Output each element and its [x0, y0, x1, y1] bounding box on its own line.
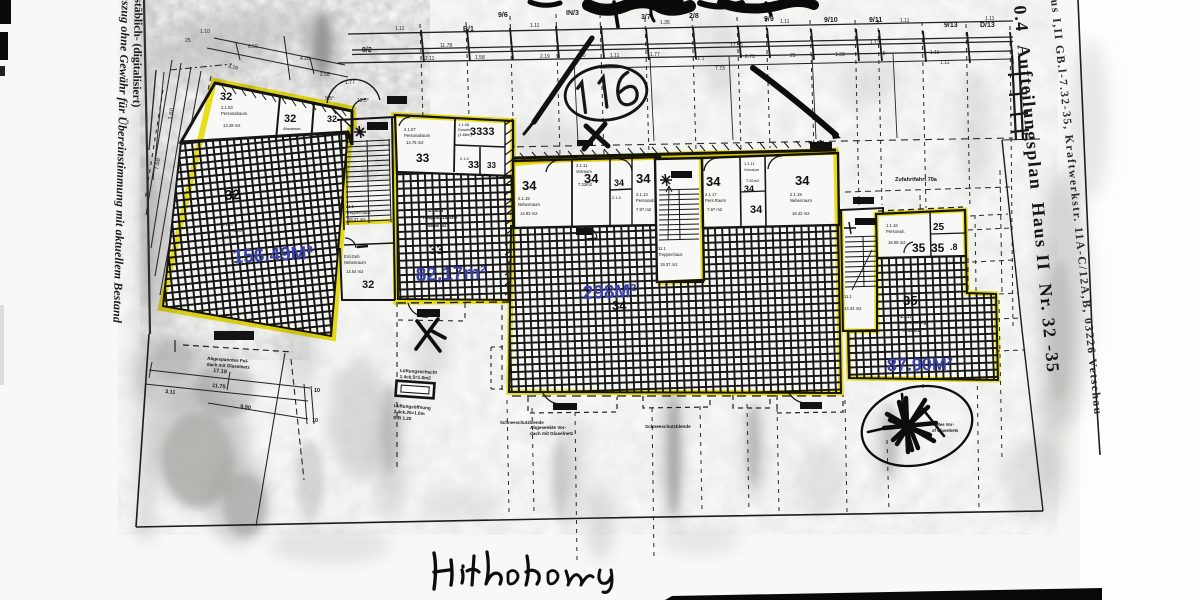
svg-text:34: 34: [795, 173, 810, 188]
svg-text:1.13: 1.13: [870, 40, 880, 46]
svg-text:6.50: 6.50: [248, 44, 258, 50]
svg-text:82,17m²: 82,17m²: [415, 263, 486, 286]
svg-text:32: 32: [220, 91, 232, 103]
svg-text:1.11: 1.11: [985, 16, 995, 22]
svg-text:1.1.16: 1.1.16: [886, 223, 898, 228]
svg-text:Abwasser.: Abwasser.: [283, 126, 301, 131]
svg-text:10: 10: [312, 418, 318, 424]
svg-text:7.97 m2: 7.97 m2: [636, 207, 652, 212]
svg-text:18.42 m2: 18.42 m2: [792, 211, 810, 216]
svg-text:1.11: 1.11: [610, 53, 620, 59]
svg-text:Vorraum: Vorraum: [744, 167, 760, 172]
svg-text:dach mit Glaselnetz: dach mit Glaselnetz: [530, 431, 574, 436]
svg-text:2.1.11: 2.1.11: [576, 163, 588, 168]
svg-text:Abgesenkte Vor-: Abgesenkte Vor-: [530, 425, 567, 430]
svg-text:Zufahrtfahrt 70a: Zufahrtfahrt 70a: [895, 177, 938, 183]
svg-text:1.11: 1.11: [900, 18, 910, 24]
svg-text:3/7: 3/7: [641, 14, 651, 21]
svg-text:of Glaselnets: of Glaselnets: [932, 428, 959, 433]
svg-text:2.1.15: 2.1.15: [518, 196, 530, 201]
svg-text:32: 32: [327, 114, 337, 124]
svg-text:Treppenhaus: Treppenhaus: [658, 252, 683, 257]
svg-text:1.11: 1.11: [780, 19, 790, 25]
svg-text:ntes Vor-: ntes Vor-: [936, 422, 954, 427]
svg-text:Treppenhaus: Treppenhaus: [346, 210, 371, 215]
svg-text:11.78: 11.78: [440, 43, 452, 49]
svg-text:34: 34: [744, 184, 754, 194]
svg-text:25: 25: [185, 38, 191, 44]
svg-text:11.1: 11.1: [346, 204, 355, 209]
svg-text:1.11: 1.11: [530, 23, 540, 29]
svg-text:11.1: 11.1: [844, 294, 853, 299]
svg-text:Personalraum: Personalraum: [221, 111, 248, 116]
svg-text:Personalr.: Personalr.: [886, 229, 905, 234]
svg-text:.8: .8: [950, 242, 958, 252]
svg-text:Nebenraum: Nebenraum: [344, 260, 366, 265]
svg-text:14.54 m2: 14.54 m2: [346, 269, 364, 274]
svg-text:4.28: 4.28: [300, 56, 310, 62]
svg-text:32: 32: [362, 279, 374, 291]
svg-text:13.29 m2: 13.29 m2: [223, 123, 241, 128]
svg-text:19.37 m2: 19.37 m2: [660, 262, 678, 267]
svg-text:9/13: 9/13: [944, 22, 958, 29]
svg-text:15: 15: [880, 51, 886, 57]
svg-text:9/10: 9/10: [824, 17, 838, 24]
svg-text:1.11: 1.11: [930, 50, 940, 56]
svg-text:Pers.Raum: Pers.Raum: [705, 198, 726, 203]
svg-text:8/2: 8/2: [362, 47, 372, 54]
svg-text:10: 10: [314, 388, 320, 394]
svg-text:9/11: 9/11: [869, 17, 882, 24]
svg-text:B/1: B/1: [463, 26, 474, 33]
svg-text:56.56 m2: 56.56 m2: [428, 223, 447, 228]
svg-text:1.1.17: 1.1.17: [900, 314, 912, 319]
svg-text:34: 34: [636, 171, 651, 186]
svg-text:141.2 m2: 141.2 m2: [224, 234, 241, 239]
svg-text:14.34 m2: 14.34 m2: [844, 306, 862, 311]
svg-text:1.35: 1.35: [660, 20, 670, 26]
svg-text:17.50: 17.50: [730, 43, 743, 49]
svg-text:32: 32: [284, 113, 296, 125]
svg-text:32: 32: [224, 186, 241, 203]
svg-text:78.53 m2: 78.53 m2: [902, 328, 920, 333]
svg-text:1.1.05/06: 1.1.05/06: [425, 208, 444, 213]
svg-text:25: 25: [933, 222, 945, 233]
svg-text:Hauptnutzfl.: Hauptnutzfl.: [222, 228, 243, 233]
svg-text:7.19 m2: 7.19 m2: [285, 133, 300, 138]
svg-text:35: 35: [931, 241, 945, 255]
svg-text:Nebenraum: Nebenraum: [790, 198, 812, 203]
svg-text:2.11: 2.11: [425, 56, 435, 62]
svg-text:33: 33: [416, 151, 430, 165]
svg-text:9/9: 9/9: [764, 16, 774, 23]
svg-text:16.09 m2: 16.09 m2: [888, 240, 906, 245]
svg-text:1.1.01: 1.1.01: [222, 222, 234, 227]
svg-text:1.1.7: 1.1.7: [945, 259, 955, 264]
svg-text:7.73: 7.73: [715, 66, 725, 72]
svg-text:1.77: 1.77: [650, 52, 660, 58]
svg-text:33: 33: [468, 160, 480, 171]
svg-text:1.11: 1.11: [395, 26, 405, 32]
svg-text:34: 34: [614, 178, 624, 188]
svg-text:11.1: 11.1: [658, 246, 667, 251]
svg-text:3.11: 3.11: [165, 389, 176, 396]
svg-text:Hauptnutzfläche: Hauptnutzfläche: [423, 215, 458, 220]
svg-text:34: 34: [584, 171, 599, 186]
svg-text:Erd.Geb: Erd.Geb: [344, 254, 360, 259]
svg-text:Schneeschutzblende: Schneeschutzblende: [500, 420, 544, 425]
svg-text:35: 35: [903, 293, 917, 308]
svg-text:7.97 m2: 7.97 m2: [707, 207, 723, 212]
svg-text:1.58: 1.58: [475, 55, 485, 61]
svg-text:1.11: 1.11: [940, 60, 950, 66]
svg-text:14.93 m2: 14.93 m2: [520, 211, 538, 216]
svg-text:2.73: 2.73: [745, 54, 755, 60]
svg-text:87.90M²: 87.90M²: [887, 354, 953, 375]
svg-text:2.58: 2.58: [320, 72, 330, 78]
svg-text:IN/3: IN/3: [566, 10, 579, 17]
svg-text:Nebenraum: Nebenraum: [518, 202, 540, 207]
svg-text:3333: 3333: [470, 126, 494, 138]
svg-text:34: 34: [706, 174, 721, 189]
svg-text:13.5°: 13.5°: [357, 98, 369, 104]
svg-text:Hauptnutzung: Hauptnutzung: [898, 320, 927, 325]
svg-text:2.1.0: 2.1.0: [612, 195, 622, 200]
svg-text:298M²: 298M²: [582, 281, 637, 304]
svg-text:2.1.13: 2.1.13: [636, 192, 648, 197]
svg-text:9/6: 9/6: [498, 12, 508, 19]
svg-text:2.1.17: 2.1.17: [705, 192, 717, 197]
svg-text:14.75 m2: 14.75 m2: [406, 140, 424, 145]
svg-text:2.19: 2.19: [540, 54, 550, 60]
svg-text:7.52m2: 7.52m2: [746, 178, 760, 183]
svg-text:D/13: D/13: [980, 22, 995, 29]
svg-text:2.1.19: 2.1.19: [790, 192, 802, 197]
svg-text:Personalr.: Personalr.: [636, 198, 655, 203]
svg-text:35: 35: [912, 241, 926, 255]
svg-text:2/8: 2/8: [689, 13, 699, 20]
svg-text:25: 25: [790, 53, 796, 59]
svg-text:2.1.07: 2.1.07: [404, 127, 416, 132]
svg-text:34: 34: [750, 204, 763, 216]
svg-text:Personalraum: Personalraum: [404, 133, 431, 138]
svg-text:33: 33: [429, 242, 443, 257]
svg-text:1.1.11: 1.1.11: [744, 161, 756, 166]
svg-text:34: 34: [522, 178, 537, 193]
svg-text:156.49M²: 156.49M²: [232, 243, 313, 268]
svg-text:2.1.03: 2.1.03: [221, 105, 233, 110]
svg-text:1.10: 1.10: [200, 29, 210, 35]
svg-text:11.1: 11.1: [695, 56, 705, 62]
svg-text:33: 33: [487, 161, 496, 170]
svg-text:1.33: 1.33: [835, 52, 845, 58]
svg-text:Schneeschutzblende: Schneeschutzblende: [645, 424, 691, 429]
